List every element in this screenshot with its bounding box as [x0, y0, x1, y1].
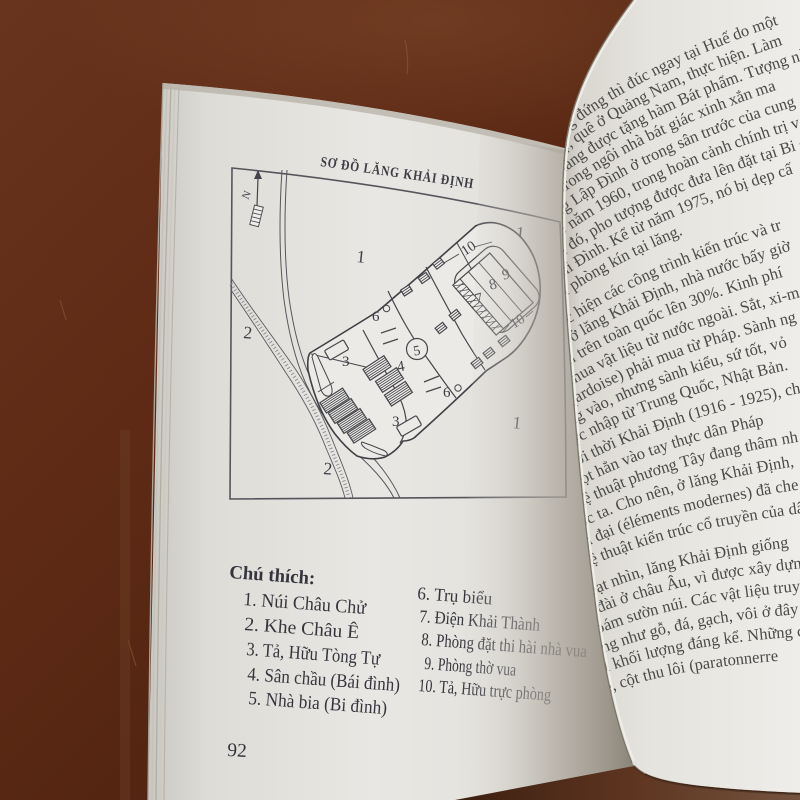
svg-text:92: 92 [227, 740, 248, 762]
svg-text:2: 2 [323, 458, 333, 479]
svg-text:6: 6 [372, 309, 380, 325]
svg-text:6: 6 [443, 385, 451, 401]
svg-text:2: 2 [243, 322, 253, 343]
svg-text:3: 3 [342, 354, 350, 370]
svg-text:3: 3 [392, 414, 400, 430]
